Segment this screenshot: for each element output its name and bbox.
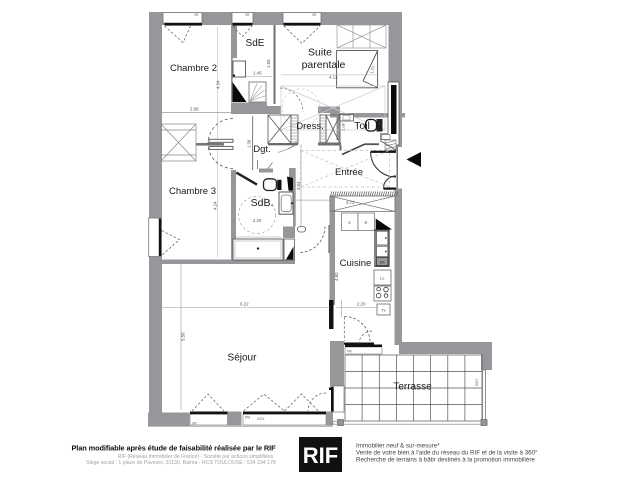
svg-text:1.38: 1.38 [247,139,252,148]
svg-text:2.20: 2.20 [253,218,262,223]
svg-text:X: X [348,220,351,225]
svg-text:1.45: 1.45 [253,71,262,76]
svg-text:VR: VR [347,350,352,354]
svg-text:6.22: 6.22 [240,302,249,307]
svg-text:Chambre 2: Chambre 2 [170,63,217,74]
svg-text:Terrasse: Terrasse [393,382,432,393]
svg-text:1.65: 1.65 [266,59,271,68]
svg-text:GCV: GCV [257,417,265,421]
svg-text:GCV: GCV [475,378,479,386]
svg-text:Dgt.: Dgt. [253,144,270,155]
svg-text:VR: VR [312,13,317,17]
svg-text:Chambre 3: Chambre 3 [169,186,216,197]
svg-text:3.72: 3.72 [346,200,355,205]
svg-text:4.24: 4.24 [213,201,218,210]
svg-text:5.58: 5.58 [181,332,186,341]
svg-text:Séjour: Séjour [228,353,258,364]
svg-text:Immobilier neuf & sur-mesure*: Immobilier neuf & sur-mesure* [356,442,440,449]
svg-text:parentale: parentale [302,59,346,71]
svg-text:SdE: SdE [246,38,265,49]
svg-text:Recherche de terrains à bâtir: Recherche de terrains à bâtir destinés à… [356,457,535,464]
svg-text:LL: LL [380,276,385,281]
svg-text:VR: VR [192,422,197,426]
svg-text:RIF: RIF [303,443,338,468]
svg-text:VR: VR [194,13,199,17]
svg-text:Siège social : 1 place de Pave: Siège social : 1 place de Paveurs, 31130… [86,460,276,466]
svg-text:4.12: 4.12 [329,75,338,80]
svg-text:Entrée: Entrée [335,167,363,178]
svg-text:Dress.: Dress. [296,121,323,132]
svg-text:Toil: Toil [354,120,370,132]
svg-text:Vente de votre bien à l'aide d: Vente de votre bien à l'aide du réseau d… [356,449,538,456]
svg-text:SdB.: SdB. [251,197,274,209]
svg-text:4.80: 4.80 [334,272,339,281]
svg-text:Cuisine: Cuisine [340,258,372,269]
svg-text:1M: 1M [380,260,385,264]
svg-text:Tv: Tv [382,309,386,313]
svg-text:VR: VR [245,13,250,17]
svg-text:2.68: 2.68 [190,107,199,112]
svg-text:4.34: 4.34 [216,80,221,89]
svg-text:Plan modifiable après étude de: Plan modifiable après étude de faisabili… [71,444,276,453]
svg-text:R: R [365,220,368,225]
svg-text:2.20: 2.20 [357,302,366,307]
svg-text:PM: PM [245,416,250,420]
svg-text:Suite: Suite [308,47,332,59]
svg-text:1.08: 1.08 [341,122,346,131]
